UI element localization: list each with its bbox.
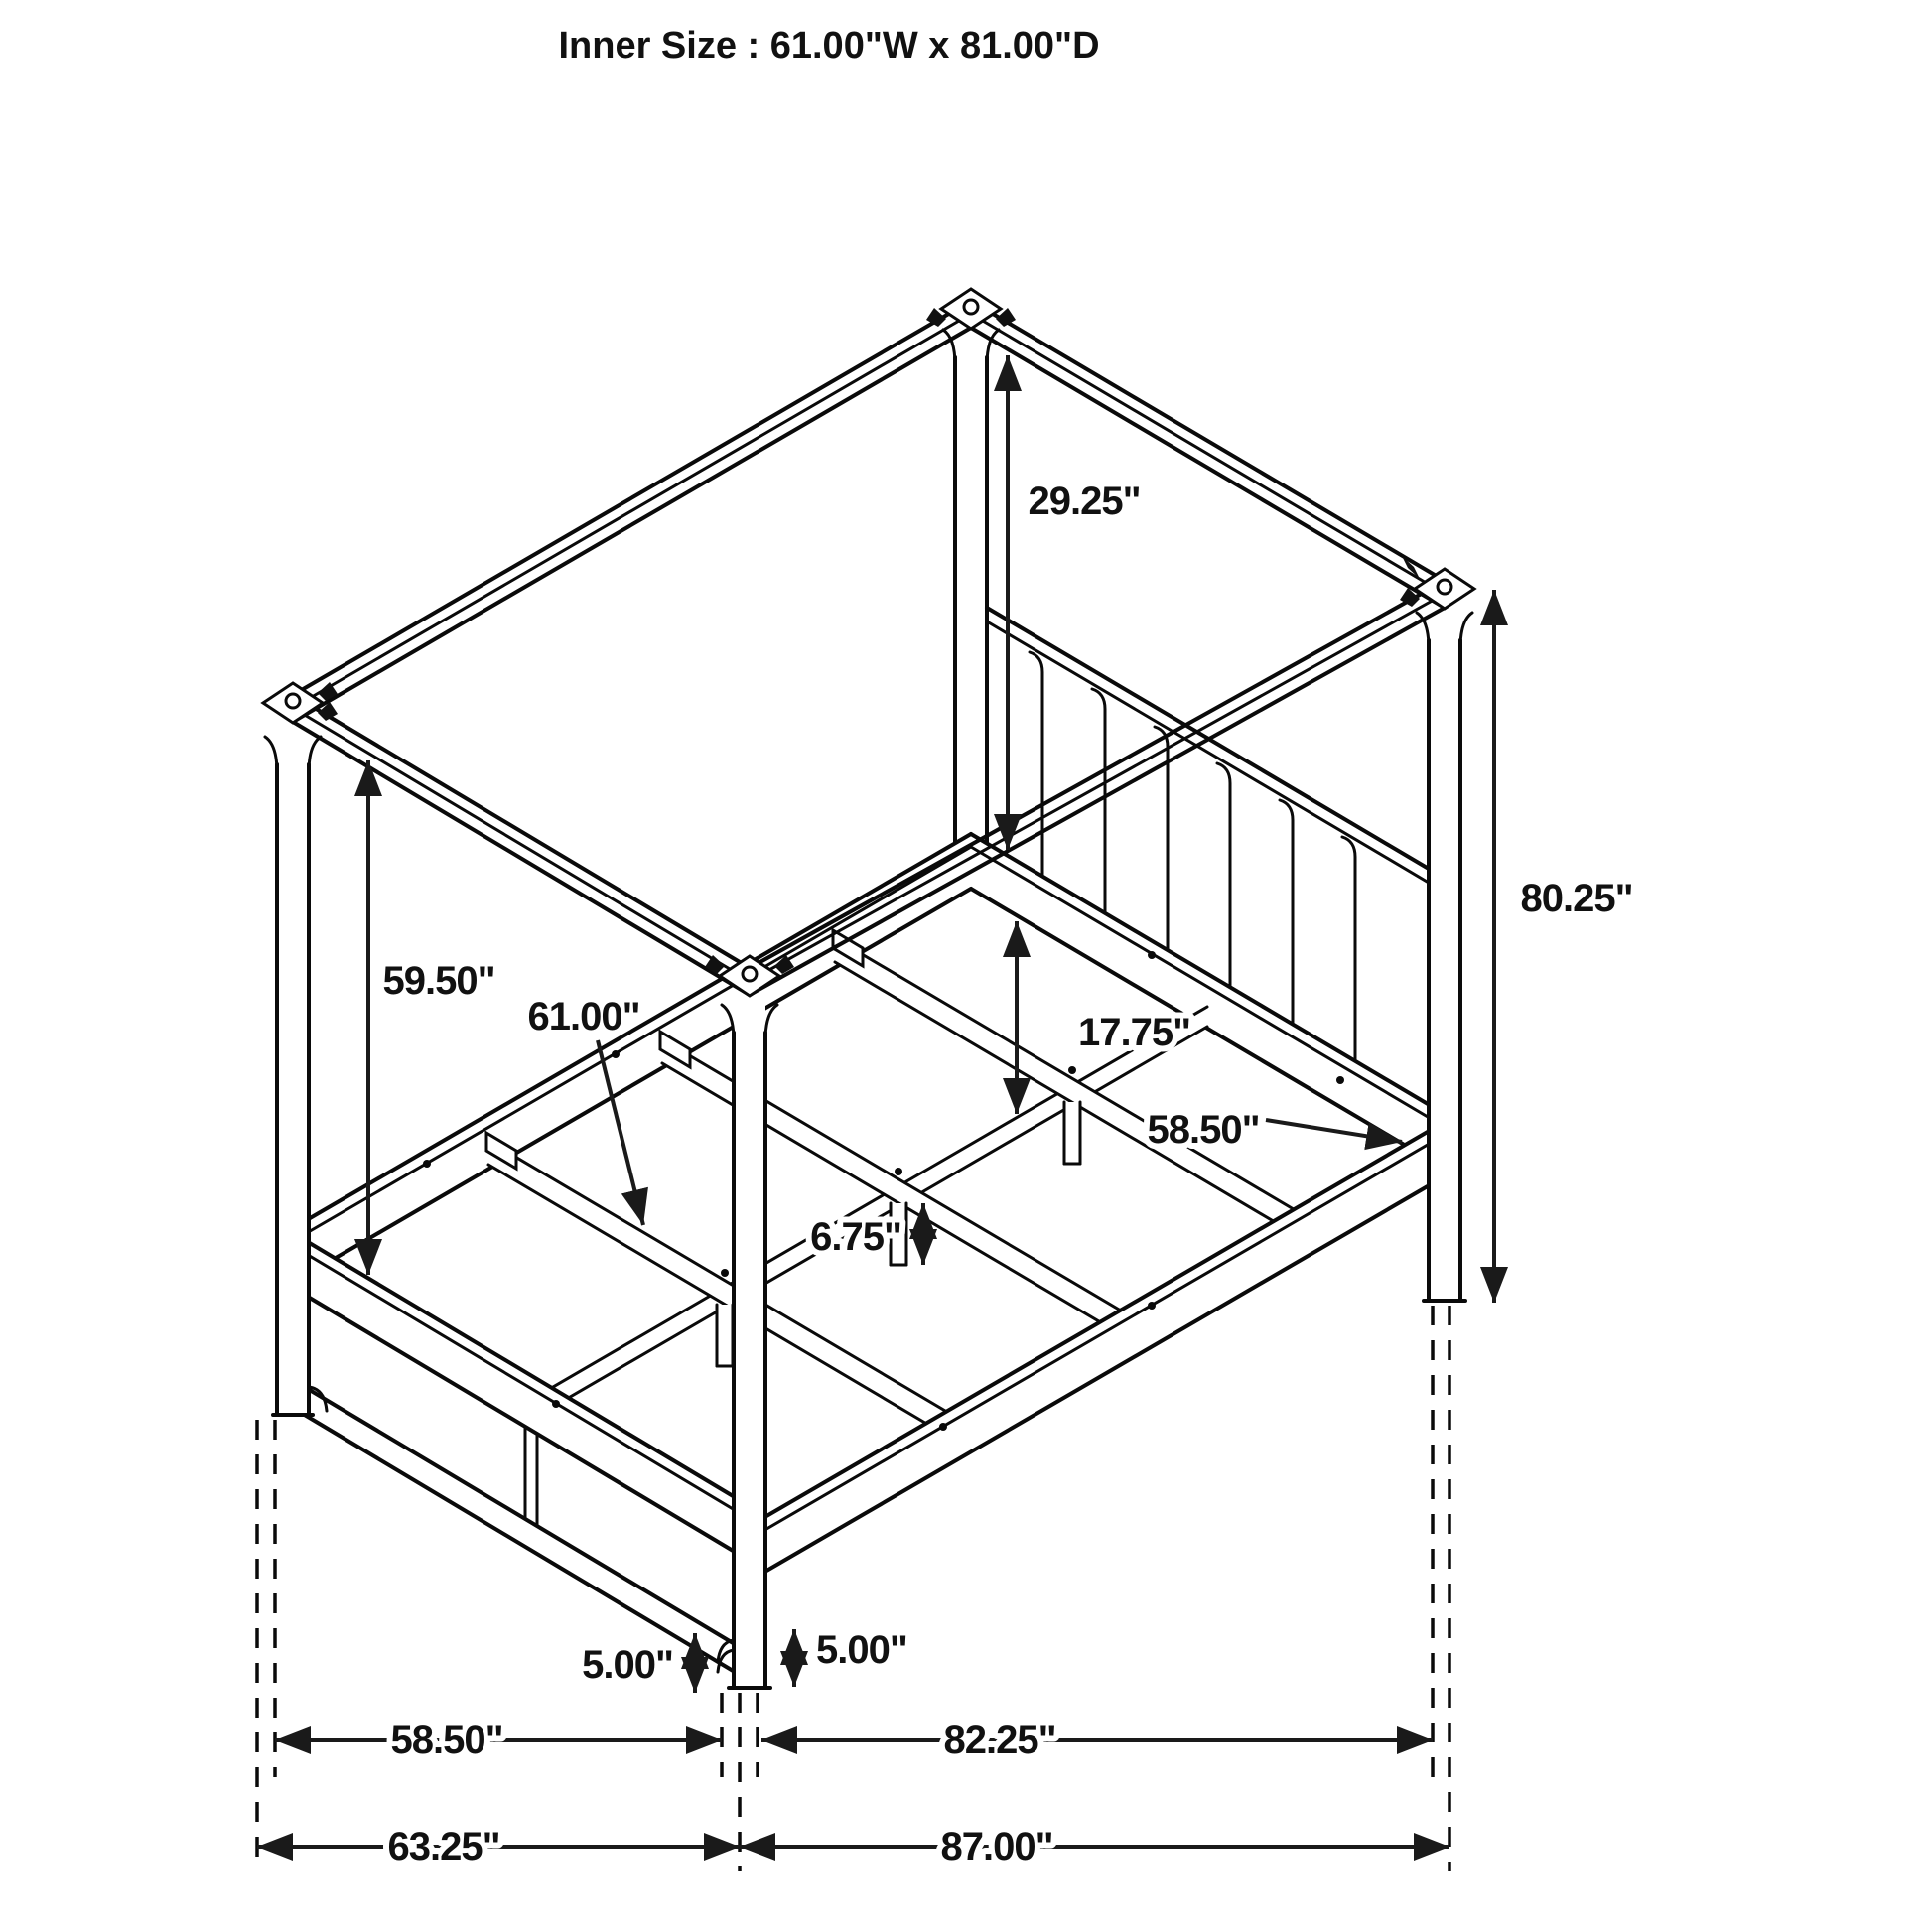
headboard-channel <box>1155 727 1168 950</box>
diagram-page: 29.25" 80.25" 59.50" 61.00" 17.75" 58.50… <box>0 0 1932 1932</box>
dim-label: 6.75" <box>810 1215 901 1259</box>
dim-label: 82.25" <box>943 1719 1055 1762</box>
dim-80-25: 80.25" <box>1494 590 1633 1303</box>
back-post <box>943 329 999 845</box>
dim-label: 5.00" <box>582 1643 673 1687</box>
dim-label: 58.50" <box>1147 1108 1259 1152</box>
dim-82-25: 82.25" <box>761 1719 1433 1762</box>
dim-label: 63.25" <box>387 1825 499 1868</box>
footboard <box>293 1233 750 1681</box>
dim-label: 58.50" <box>390 1719 502 1762</box>
dim-label: 17.75" <box>1078 1011 1190 1054</box>
dim-label: 87.00" <box>940 1825 1052 1868</box>
near-side-rail <box>750 1122 1445 1581</box>
dim-5-00-right: 5.00" <box>794 1628 907 1687</box>
extension-lines <box>257 1306 1449 1871</box>
dim-label: 59.50" <box>382 959 494 1003</box>
canopy-corner-right <box>1400 556 1474 609</box>
headboard-channel <box>1342 837 1355 1060</box>
dim-label: 5.00" <box>816 1628 907 1672</box>
dim-label: 29.25" <box>1028 480 1140 523</box>
dim-63-25: 63.25" <box>257 1825 740 1868</box>
headboard-channel <box>1217 763 1230 987</box>
bed-dimension-diagram: 29.25" 80.25" 59.50" 61.00" 17.75" 58.50… <box>0 0 1932 1932</box>
headboard-channel <box>1030 652 1042 877</box>
dim-58-50-bottom: 58.50" <box>275 1719 722 1762</box>
right-post <box>1417 611 1472 1301</box>
canopy-corner-back <box>926 289 1016 329</box>
dim-label: 80.25" <box>1520 877 1632 920</box>
headboard-channel <box>1280 800 1293 1024</box>
dim-5-00-left: 5.00" <box>582 1633 695 1693</box>
left-post <box>265 737 321 1415</box>
dim-87-00: 87.00" <box>740 1825 1449 1868</box>
dim-label: 61.00" <box>527 995 639 1038</box>
page-title: Inner Size : 61.00"W x 81.00"D <box>558 25 1099 67</box>
